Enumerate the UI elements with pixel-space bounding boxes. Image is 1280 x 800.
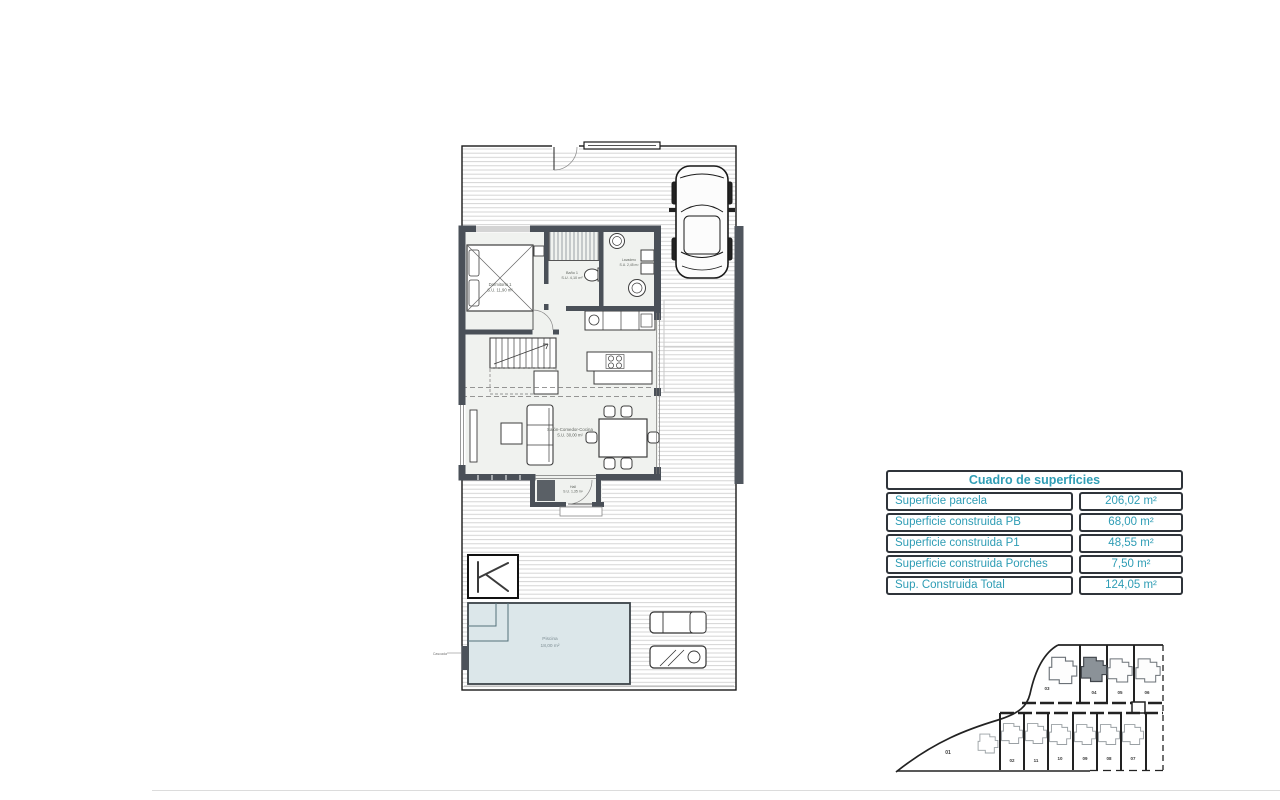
- row-label: Sup. Construida Total: [886, 576, 1073, 595]
- bedroom-label-line2: S.U. 11,90 m²: [487, 288, 513, 293]
- laundry-label-line1: Lavadero: [622, 258, 636, 262]
- sofa: [527, 405, 553, 465]
- k-logo: [468, 555, 518, 598]
- bath-label-line2: S.U. 4,10 m²: [561, 276, 583, 280]
- coffee-table: [501, 423, 522, 444]
- row-value: 124,05 m²: [1079, 576, 1183, 595]
- laundry-label-line2: S.U. 2,45 m²: [619, 263, 639, 267]
- lot-label: 03: [1044, 686, 1050, 691]
- bath-label-line1: Baño 1: [566, 271, 578, 275]
- lot-label: 11: [1034, 758, 1039, 763]
- nightstand: [534, 246, 544, 256]
- lot-house: [1050, 725, 1071, 745]
- bed: [467, 245, 533, 311]
- dining-chair: [604, 406, 615, 417]
- row-value: 7,50 m²: [1079, 555, 1183, 574]
- surface-table-title: Cuadro de superficies: [886, 470, 1183, 490]
- lot-label: 04: [1091, 690, 1097, 695]
- lot-label: 08: [1106, 756, 1112, 761]
- cascada-label: Cascada: [433, 652, 447, 656]
- lot-label: 02: [1009, 758, 1015, 763]
- lot-label: 01: [945, 750, 951, 756]
- row-value: 206,02 m²: [1079, 492, 1183, 511]
- pool-label-line1: Piscina: [542, 636, 558, 642]
- plan-sheet: Dormitorio 1 S.U. 11,90 m² Baño 1 S.U. 4…: [0, 0, 1280, 800]
- porch-closet: [537, 480, 555, 501]
- boundary-wall: [735, 226, 744, 484]
- bedroom-label-line1: Dormitorio 1: [489, 282, 512, 287]
- table-row: Superficie parcela 206,02 m²: [886, 492, 1183, 511]
- dining-chair: [604, 458, 615, 469]
- highlighted-lot-house: [1081, 657, 1106, 681]
- car: [669, 166, 735, 278]
- sliding-gate: [584, 142, 660, 149]
- dining-chair: [621, 406, 632, 417]
- sun-lounger-1: [650, 612, 706, 633]
- living-label-line1: Salón-Comedor-Cocina: [547, 427, 593, 432]
- table-row: Sup. Construida Total 124,05 m²: [886, 576, 1183, 595]
- row-value: 68,00 m²: [1079, 513, 1183, 532]
- hall-label-line2: S.U. 1,35 m²: [563, 490, 583, 494]
- lot-house: [978, 734, 998, 753]
- lot-label: 10: [1057, 756, 1063, 761]
- row-value: 48,55 m²: [1079, 534, 1183, 553]
- hall-label-line1: Hall: [570, 485, 576, 489]
- lot-house: [1075, 725, 1096, 745]
- entry-step: [560, 507, 602, 516]
- lot-house: [1026, 724, 1047, 744]
- lot-house: [1002, 724, 1023, 744]
- dining-table: [599, 419, 647, 457]
- tv-bench: [470, 410, 477, 462]
- sun-lounger-2: [650, 646, 706, 668]
- page-baseline: [152, 790, 1280, 791]
- pool-label-line2: 18,00 m²: [541, 643, 560, 649]
- table-row: Superficie construida P1 48,55 m²: [886, 534, 1183, 553]
- kitchen-counter: [585, 311, 655, 330]
- kitchen-island: [587, 352, 652, 384]
- lot-house: [1108, 659, 1132, 682]
- lot-label: 05: [1117, 690, 1123, 695]
- dining-chair: [621, 458, 632, 469]
- site-plan: 01 03 04 05 06 02 11 10 09 08 07: [890, 633, 1280, 793]
- lot-house: [1123, 725, 1144, 745]
- floor-plan: Dormitorio 1 S.U. 11,90 m² Baño 1 S.U. 4…: [430, 125, 770, 705]
- surface-table: Cuadro de superficies Superficie parcela…: [886, 470, 1183, 597]
- row-label: Superficie parcela: [886, 492, 1073, 511]
- shower: [549, 230, 599, 261]
- row-label: Superficie construida P1: [886, 534, 1073, 553]
- road-boundary: [896, 645, 1058, 772]
- dining-chair: [586, 432, 597, 443]
- lot-house: [1136, 659, 1160, 682]
- row-label: Superficie construida Porches: [886, 555, 1073, 574]
- cascada-feature: [462, 646, 469, 670]
- dining-chair: [648, 432, 659, 443]
- lot-label: 06: [1144, 690, 1150, 695]
- row-label: Superficie construida PB: [886, 513, 1073, 532]
- lot-label: 09: [1082, 756, 1088, 761]
- table-row: Superficie construida Porches 7,50 m²: [886, 555, 1183, 574]
- lot-house: [1099, 725, 1120, 745]
- lot-house: [1049, 657, 1077, 683]
- living-label-line2: S.U. 30,00 m²: [557, 433, 583, 438]
- table-row: Superficie construida PB 68,00 m²: [886, 513, 1183, 532]
- lot-label: 07: [1130, 756, 1136, 761]
